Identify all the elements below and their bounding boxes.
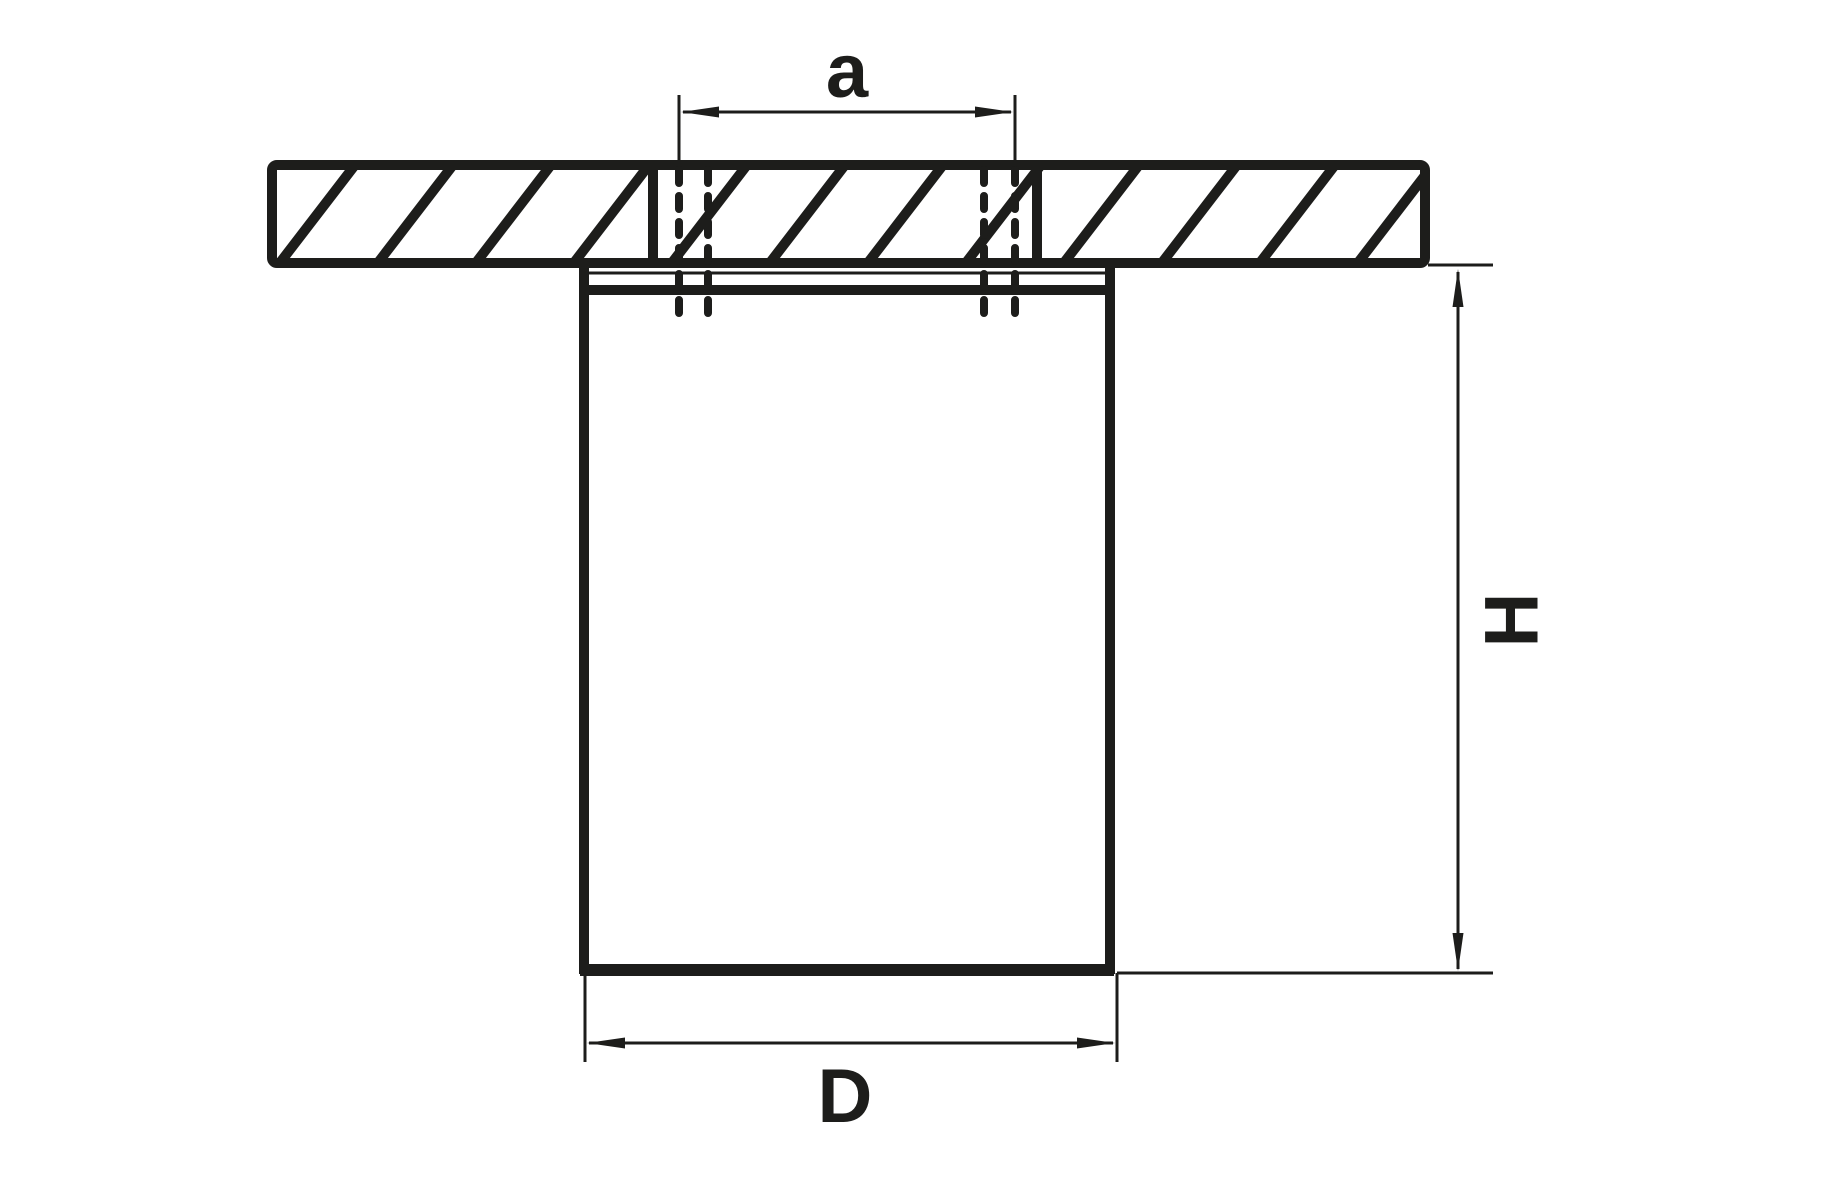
dimension-drawing: a H D	[0, 0, 1831, 1181]
label-screw-spacing: a	[826, 29, 869, 114]
label-diameter: D	[818, 1054, 873, 1139]
label-height: H	[1470, 593, 1555, 648]
